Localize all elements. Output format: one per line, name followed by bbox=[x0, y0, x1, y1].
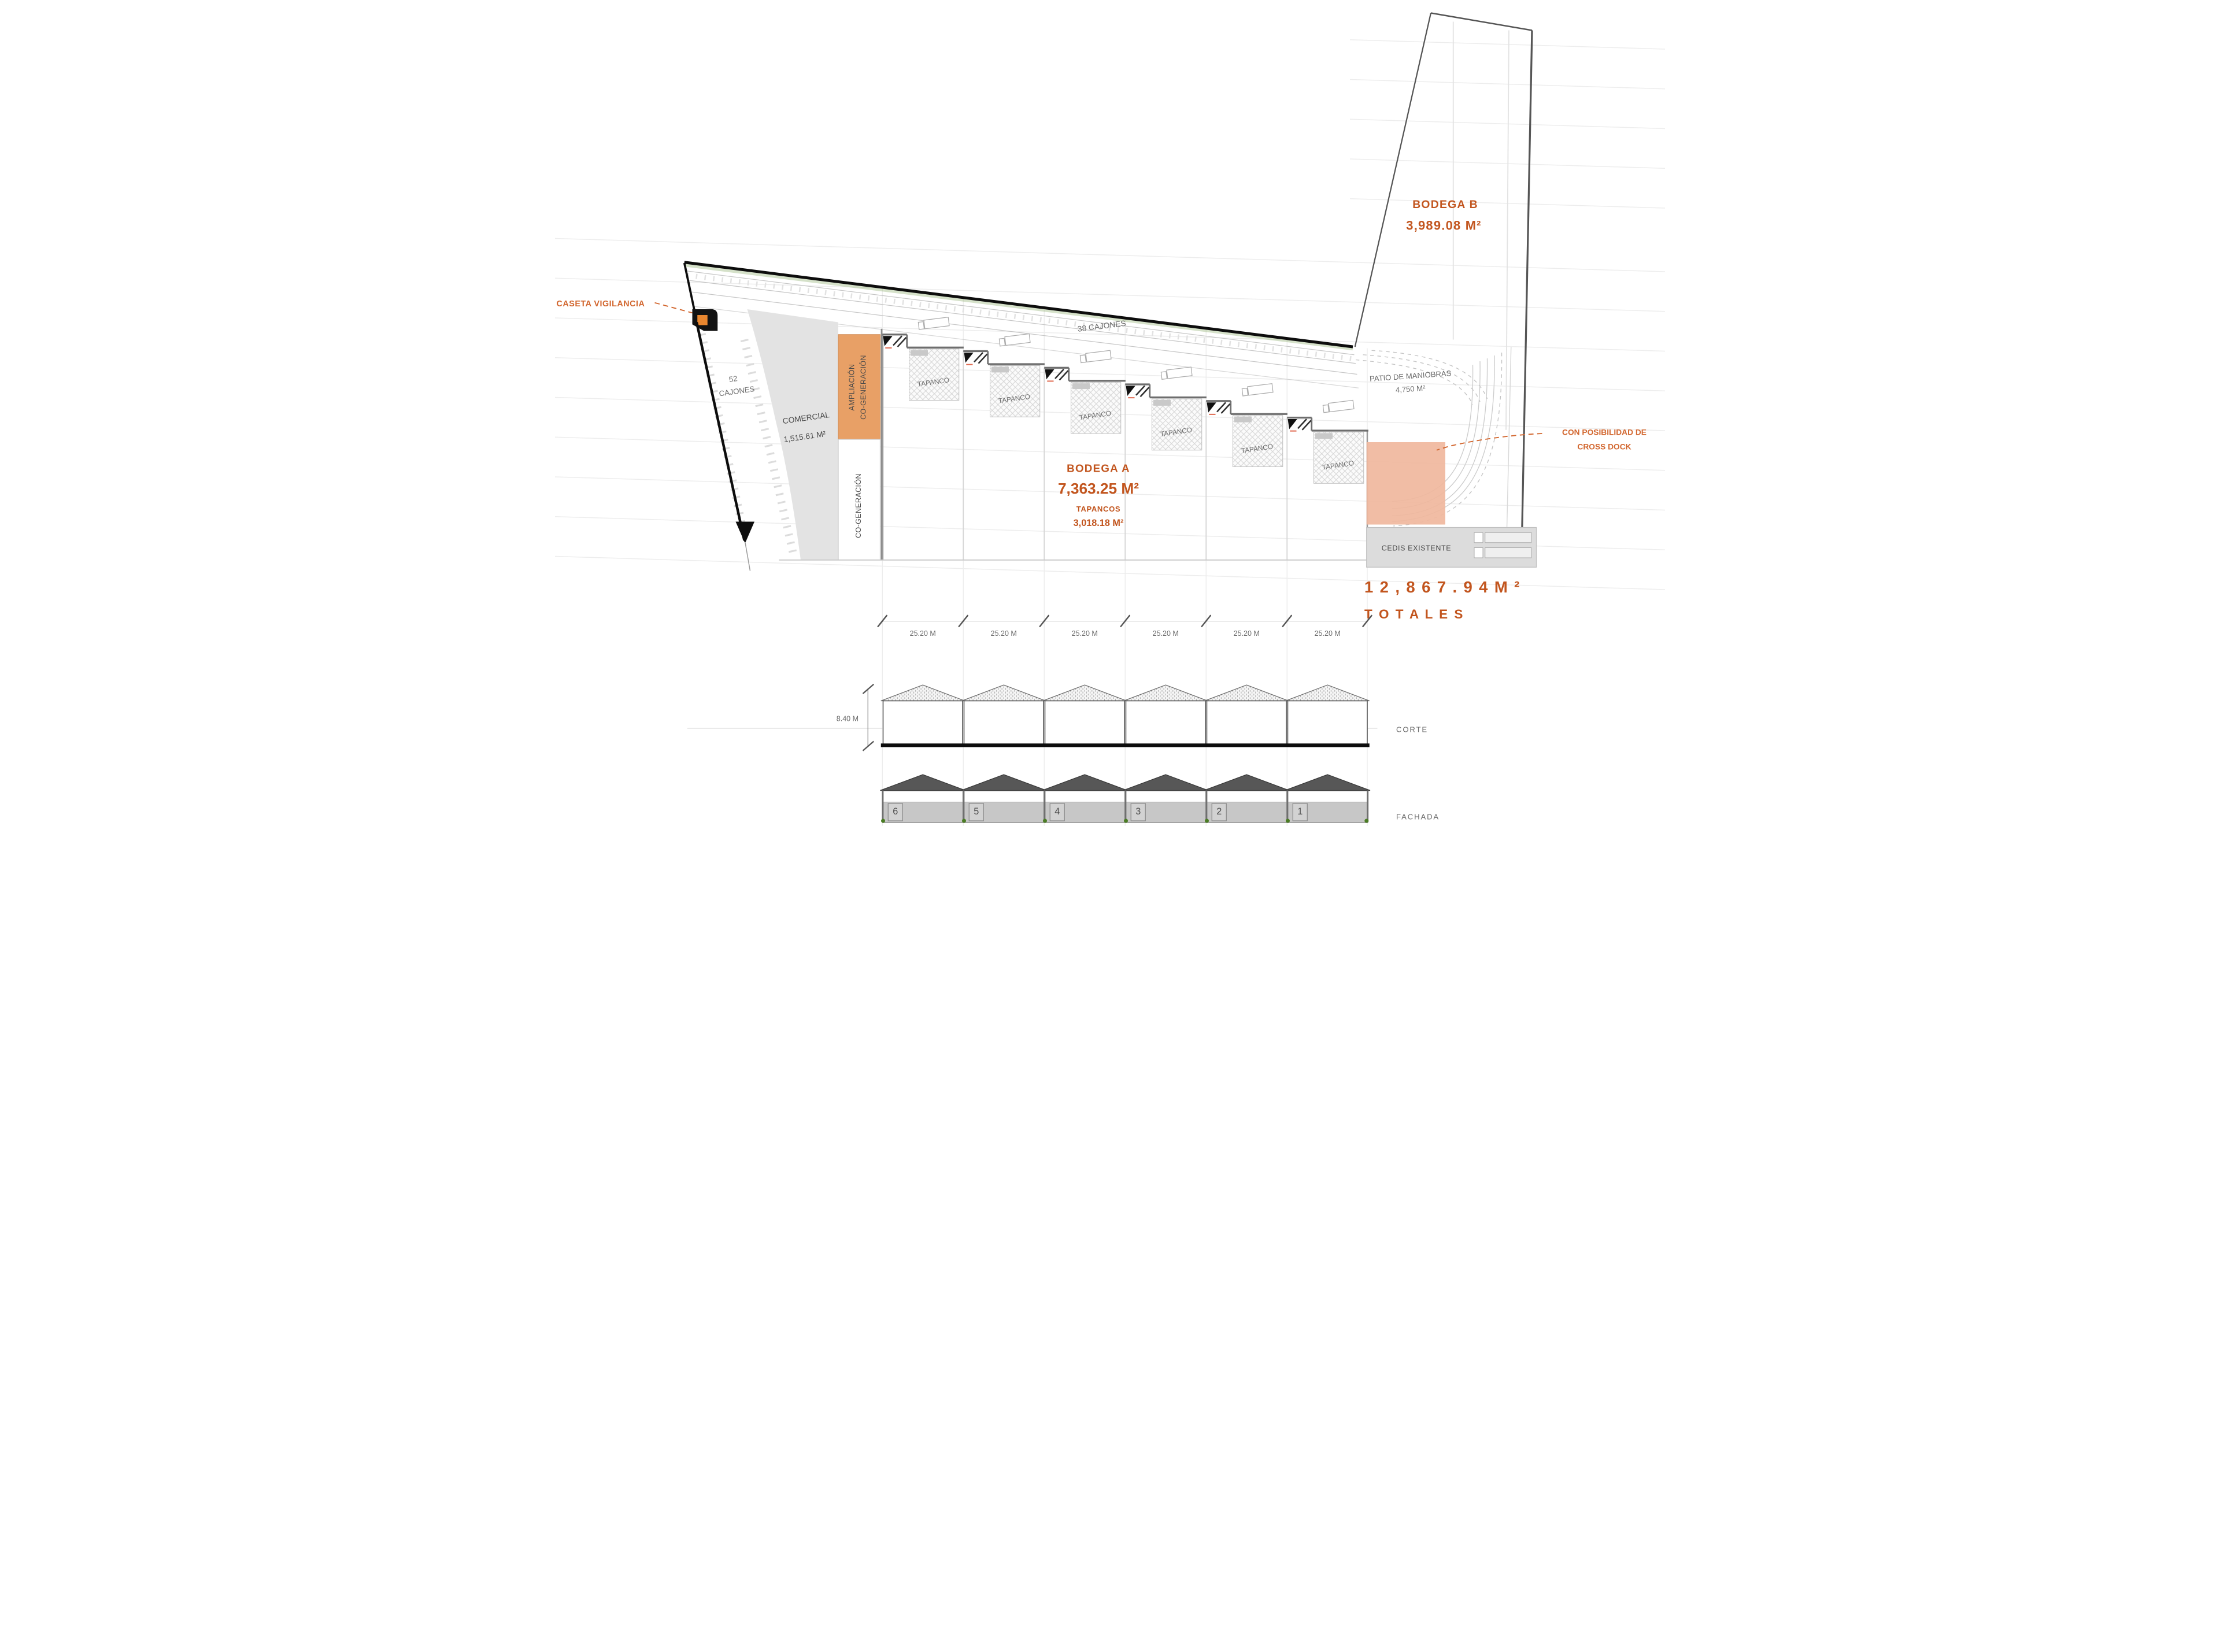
bodega-b-west-boundary bbox=[1355, 13, 1431, 347]
cross-dock-line2: CROSS DOCK bbox=[1577, 443, 1631, 451]
site-east-boundary bbox=[1522, 31, 1533, 539]
module-4-plan bbox=[1125, 367, 1207, 450]
module-2-plan bbox=[963, 334, 1045, 417]
corte-module-5 bbox=[1205, 685, 1289, 744]
corte-module-4 bbox=[1124, 685, 1208, 744]
unit-number-3: 3 bbox=[1135, 806, 1141, 817]
cedis-dock-2a bbox=[1474, 548, 1483, 558]
corte-module-3 bbox=[1043, 685, 1127, 744]
dim-width-5: 25.20 M bbox=[1234, 629, 1260, 638]
fachada-section: 6 5 4 3 2 1 FACHADA bbox=[880, 775, 1440, 823]
bodega-a-name: BODEGA A bbox=[1067, 462, 1130, 474]
dim-width-4: 25.20 M bbox=[1153, 629, 1179, 638]
unit-number-1: 1 bbox=[1297, 806, 1303, 817]
module-3-plan bbox=[1044, 350, 1126, 434]
unit-number-2: 2 bbox=[1216, 806, 1222, 817]
cedis-dock-2b bbox=[1485, 548, 1531, 558]
corte-module-6 bbox=[1286, 685, 1370, 744]
total-label: T O T A L E S bbox=[1364, 607, 1464, 621]
corte-label: CORTE bbox=[1396, 725, 1428, 734]
dim-width-1: 25.20 M bbox=[910, 629, 936, 638]
height-dimension: 8.40 M bbox=[837, 715, 859, 723]
site-plan-page: BODEGA B 3,989.08 M² 38 CAJONES CASETA V… bbox=[555, 0, 1665, 826]
ampliacion-line1: AMPLIACIÓN bbox=[848, 364, 856, 411]
strip-cajones-count: 52 bbox=[728, 374, 738, 384]
corte-module-1 bbox=[881, 685, 965, 744]
bodega-a-area: 7,363.25 M² bbox=[1058, 480, 1139, 497]
module-5-plan bbox=[1206, 384, 1287, 467]
unit-number-6: 6 bbox=[893, 806, 898, 817]
bodega-b-north-boundary bbox=[1431, 13, 1532, 31]
bodega-a-sub-area: 3,018.18 M² bbox=[1074, 518, 1124, 528]
module-6-plan bbox=[1287, 400, 1368, 483]
west-boundary-upper bbox=[684, 263, 695, 311]
cross-dock-leader-line bbox=[1437, 434, 1542, 450]
cedis-dock-1b bbox=[1485, 532, 1531, 543]
dim-width-6: 25.20 M bbox=[1315, 629, 1341, 638]
corte-section: 8.40 M CORTE bbox=[687, 684, 1428, 751]
cross-dock-line1: CON POSIBILIDAD DE bbox=[1562, 428, 1646, 437]
cedis-existente: CEDIS EXISTENTE bbox=[1367, 528, 1537, 568]
caseta-leader-line bbox=[655, 303, 693, 313]
dim-width-2: 25.20 M bbox=[991, 629, 1017, 638]
cedis-label: CEDIS EXISTENTE bbox=[1382, 545, 1452, 553]
bodega-a-sub: TAPANCOS bbox=[1076, 505, 1121, 513]
cross-dock-area bbox=[1367, 442, 1445, 525]
site-plan-drawing: BODEGA B 3,989.08 M² 38 CAJONES CASETA V… bbox=[555, 0, 1665, 826]
unit-number-5: 5 bbox=[974, 806, 979, 817]
strip-cajones-word: CAJONES bbox=[719, 384, 756, 398]
cogeneracion-label: CO-GENERACIÓN bbox=[854, 473, 863, 538]
west-boundary-lower bbox=[697, 323, 745, 541]
ampliacion-line2: CO-GENERACIÓN bbox=[859, 355, 868, 420]
guard-booth-roof bbox=[697, 315, 708, 325]
cedis-dock-1a bbox=[1474, 532, 1483, 543]
bodega-b-name: BODEGA B bbox=[1412, 198, 1478, 211]
cogeneration-strip: AMPLIACIÓN CO-GENERACIÓN CO-GENERACIÓN bbox=[838, 329, 882, 560]
patio-name: PATIO DE MANIOBRAS bbox=[1370, 369, 1452, 383]
bodega-b-area: 3,989.08 M² bbox=[1406, 218, 1481, 233]
totals-block: 1 2 , 8 6 7 . 9 4 M ² T O T A L E S bbox=[1364, 578, 1520, 621]
fachada-label: FACHADA bbox=[1396, 813, 1440, 821]
unit-number-4: 4 bbox=[1054, 806, 1060, 817]
boundary-arrow-end bbox=[736, 522, 755, 544]
dim-width-3: 25.20 M bbox=[1072, 629, 1098, 638]
corte-module-2 bbox=[962, 685, 1046, 744]
caseta-label: CASETA VIGILANCIA bbox=[557, 299, 645, 309]
patio-area: 4,750 M² bbox=[1395, 384, 1426, 395]
total-area: 1 2 , 8 6 7 . 9 4 M ² bbox=[1364, 578, 1520, 596]
cross-dock-zone: CON POSIBILIDAD DE CROSS DOCK bbox=[1367, 428, 1646, 525]
